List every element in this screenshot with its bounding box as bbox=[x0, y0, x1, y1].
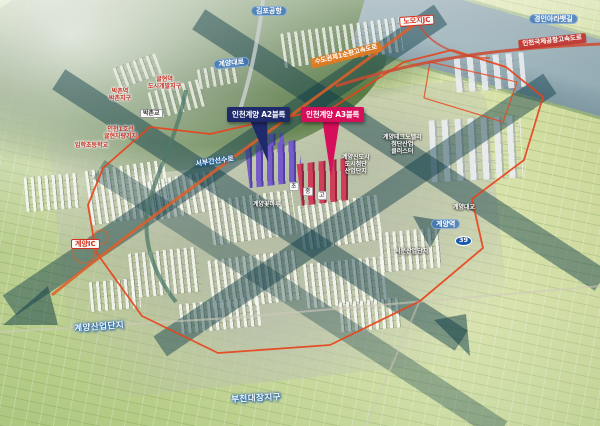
bakchon-district-label-line: 박촌지구 bbox=[109, 95, 131, 102]
gimpo-airport-label: 김포공항 bbox=[251, 6, 287, 16]
hightech-complex-label-line: 산업단지 bbox=[342, 168, 370, 175]
block-a3-callout: 인천계양 A3블록 bbox=[301, 107, 364, 122]
block-a3-callout-text: 인천계양 A3블록 bbox=[306, 110, 359, 119]
route-39-label: 39 bbox=[455, 236, 472, 246]
gyeyang-station-label: 계양역 bbox=[431, 219, 460, 229]
gyulhyeon-district-label-line: 도시개발지구 bbox=[148, 83, 181, 90]
green-corridor-bands bbox=[3, 5, 600, 426]
school-mid-label: 중 bbox=[303, 187, 313, 196]
gyeyang-ic-label: 계양IC bbox=[71, 239, 100, 249]
seoun-industrial-label: 서운산업단지 bbox=[395, 248, 428, 255]
school-elem-label: 초 bbox=[289, 182, 299, 191]
gyulhyeon-depot-label-line: 귤현차량기지 bbox=[104, 133, 137, 140]
industry-cluster-label-line: 클러스터 bbox=[383, 148, 422, 155]
block-a3-pointer bbox=[322, 118, 340, 177]
gyulhyeon-district-label: 귤현역도시개발지구 bbox=[148, 76, 181, 90]
block-a2-callout: 인천계양 A2블록 bbox=[227, 107, 290, 122]
industry-cluster-label: 계양테크노밸리첨단산업클러스터 bbox=[383, 134, 422, 156]
school-high-label: 고 bbox=[317, 191, 327, 200]
block-a2-callout-text: 인천계양 A2블록 bbox=[232, 110, 285, 119]
imhak-elementary-label: 임학초등학교 bbox=[75, 142, 108, 149]
map-overlay bbox=[0, 0, 600, 426]
gyeyang-bridge-label: 계양대교 bbox=[453, 204, 475, 211]
aerial-map: 김포공항노오지JC경인아라뱃길인천국제공항고속도로수도권제1순환고속도로계양대로… bbox=[0, 0, 600, 426]
gyulhyeon-depot-label: 인천1호선귤현차량기지 bbox=[104, 126, 137, 140]
hightech-complex-label: 계양신도시도시첨단산업단지 bbox=[342, 154, 370, 176]
ara-waterway-label: 경인아라뱃길 bbox=[529, 14, 578, 24]
flower-park-label: 계양꽃마루 bbox=[253, 201, 281, 208]
bakchon-district-label: 박촌역박촌지구 bbox=[109, 88, 131, 102]
bakchon-bridge-label: 박촌교 bbox=[140, 109, 163, 118]
